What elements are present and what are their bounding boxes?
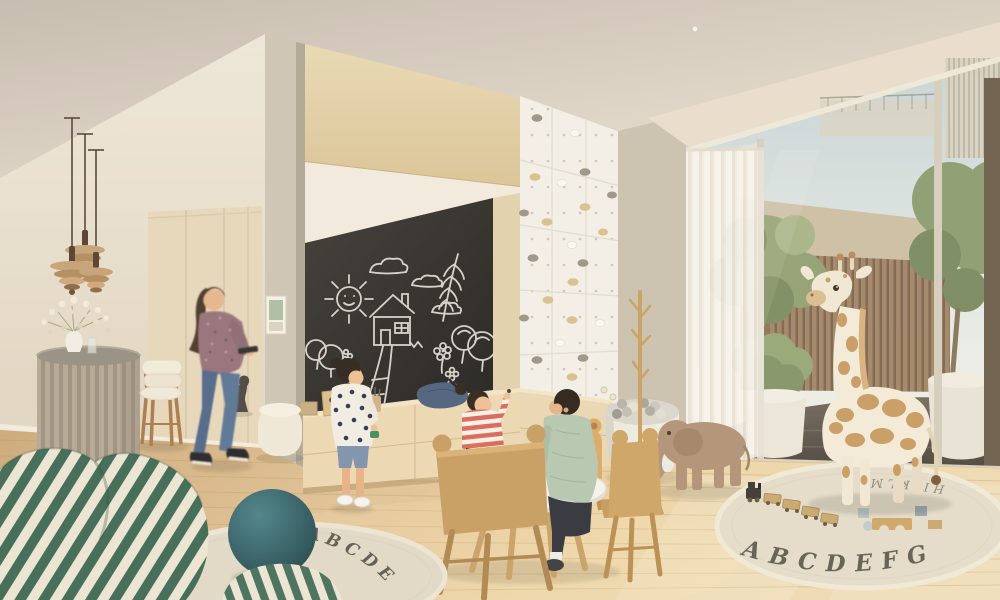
playroom-rendering: ABCDEFG HIJKLM [0,0,1000,600]
scene-canvas: ABCDEFG HIJKLM [0,0,1000,600]
warm-light-overlay [0,0,1000,600]
